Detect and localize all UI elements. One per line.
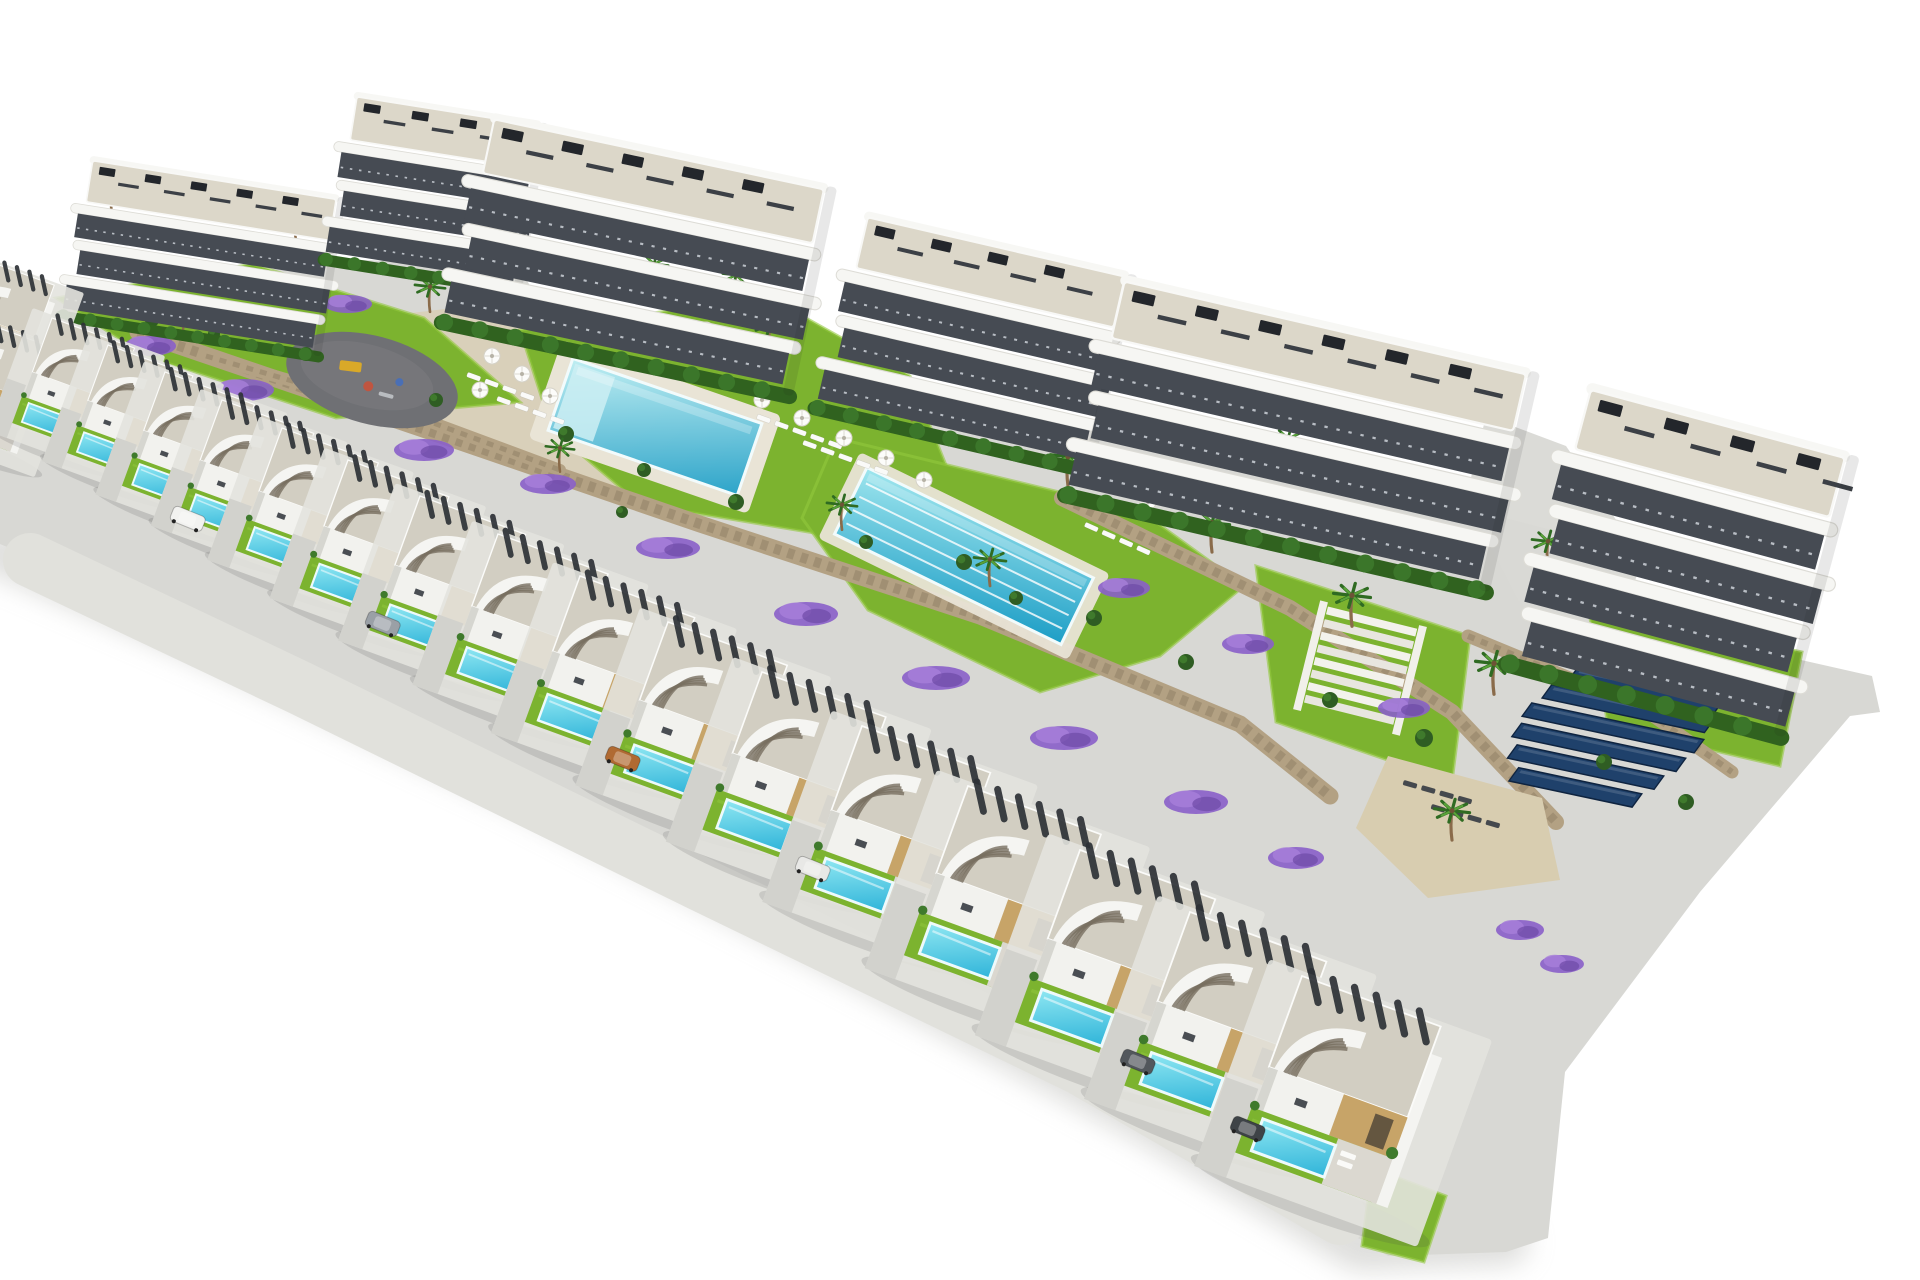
shrub-highlight: [957, 555, 965, 563]
flower-bed: [1378, 698, 1430, 718]
render-stage: [0, 0, 1920, 1280]
flower-bed: [1030, 726, 1098, 750]
palm-crown: [988, 557, 993, 562]
flowers-dark: [545, 480, 570, 492]
shrub-highlight: [638, 464, 645, 471]
flowers-dark: [1245, 640, 1268, 652]
shrub-highlight: [1597, 755, 1605, 763]
shrub: [1415, 729, 1433, 747]
parasol-pole: [520, 372, 524, 376]
flower-bed: [1164, 790, 1228, 814]
flowers-dark: [802, 609, 831, 623]
shrub-highlight: [559, 427, 567, 435]
flower-bed: [1222, 634, 1274, 654]
palm-crown: [428, 284, 433, 289]
flower-bed: [1496, 920, 1544, 940]
shrub-highlight: [729, 495, 737, 503]
parasol: [794, 410, 810, 426]
flower-bed: [520, 474, 576, 494]
flower-bed: [394, 439, 454, 461]
parasol-pole: [478, 388, 482, 392]
shrub: [1086, 610, 1102, 626]
shrub: [1678, 794, 1694, 810]
shrub-highlight: [430, 394, 437, 401]
parasol: [542, 388, 558, 404]
shrub: [1009, 591, 1023, 605]
palm-crown: [1449, 808, 1454, 813]
parasol: [916, 472, 932, 488]
shrub-highlight: [1417, 731, 1426, 740]
palm-crown: [1491, 661, 1497, 667]
shrub-highlight: [1087, 611, 1095, 619]
shrub: [429, 393, 443, 407]
flowers-dark: [1401, 704, 1424, 716]
shrub-highlight: [860, 536, 867, 543]
shrub-highlight: [1323, 693, 1331, 701]
palm-crown: [558, 446, 562, 450]
flowers-dark: [421, 445, 448, 458]
flowers-dark: [1192, 797, 1221, 811]
flowers-dark: [1559, 961, 1579, 972]
parasol: [514, 366, 530, 382]
shrub: [728, 494, 744, 510]
flowers-dark: [1060, 733, 1091, 747]
flower-bed: [1098, 578, 1150, 598]
development-aerial-render: [0, 0, 1920, 1280]
shrub: [558, 426, 574, 442]
flowers-dark: [1517, 926, 1539, 938]
parasol: [878, 450, 894, 466]
parasol-pole: [884, 456, 888, 460]
shrub: [1178, 654, 1194, 670]
flower-bed: [636, 537, 700, 559]
shrub: [1322, 692, 1338, 708]
flowers-dark: [932, 673, 963, 687]
parasol-pole: [800, 416, 804, 420]
shrub-highlight: [1179, 655, 1187, 663]
flower-bed: [902, 666, 970, 690]
flowers-dark: [1121, 584, 1144, 596]
shrub: [859, 535, 873, 549]
parasol: [472, 382, 488, 398]
shrub: [637, 463, 651, 477]
flowers-dark: [241, 385, 268, 398]
parasol-pole: [922, 478, 926, 482]
palm-crown: [1349, 593, 1355, 599]
parasol-pole: [548, 394, 552, 398]
shrub-highlight: [617, 507, 623, 513]
flowers-dark: [664, 543, 693, 556]
shrub: [1596, 754, 1612, 770]
flower-bed: [774, 602, 838, 626]
parasol-pole: [842, 436, 846, 440]
parasol: [836, 430, 852, 446]
flowers-dark: [345, 301, 367, 312]
shrub: [616, 506, 628, 518]
flowers-dark: [1293, 853, 1318, 866]
parasol-pole: [490, 354, 494, 358]
parasol: [484, 348, 500, 364]
shrub: [956, 554, 972, 570]
shrub-highlight: [1679, 795, 1687, 803]
flower-bed: [1268, 847, 1324, 869]
shrub-highlight: [1010, 592, 1017, 599]
palm-crown: [840, 502, 845, 507]
palm-crown: [1546, 539, 1551, 544]
